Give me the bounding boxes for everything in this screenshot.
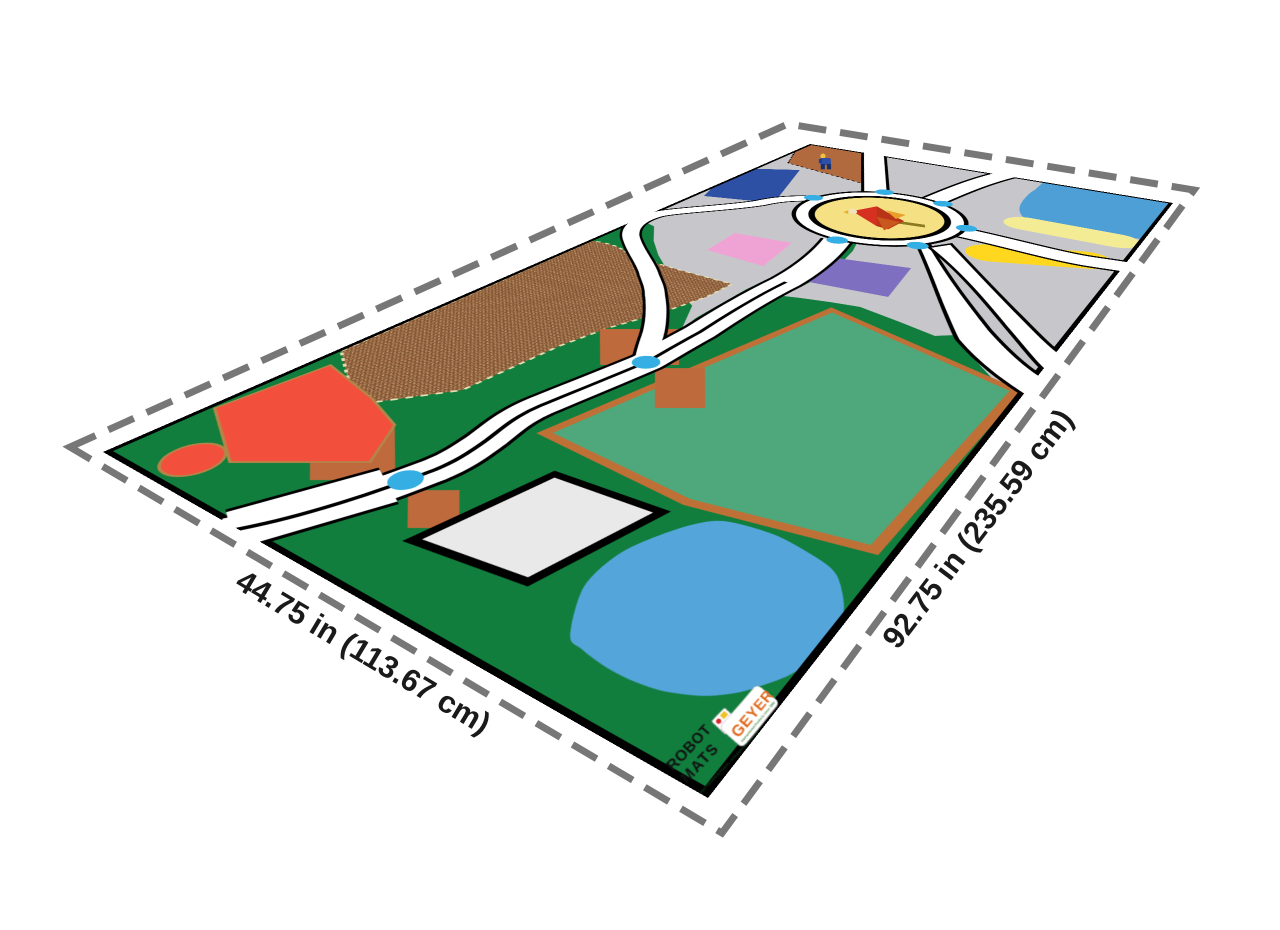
svg-text:44.75 in (113.67 cm): 44.75 in (113.67 cm) (230, 563, 497, 741)
svg-text:92.75 in (235.59 cm): 92.75 in (235.59 cm) (875, 402, 1080, 655)
